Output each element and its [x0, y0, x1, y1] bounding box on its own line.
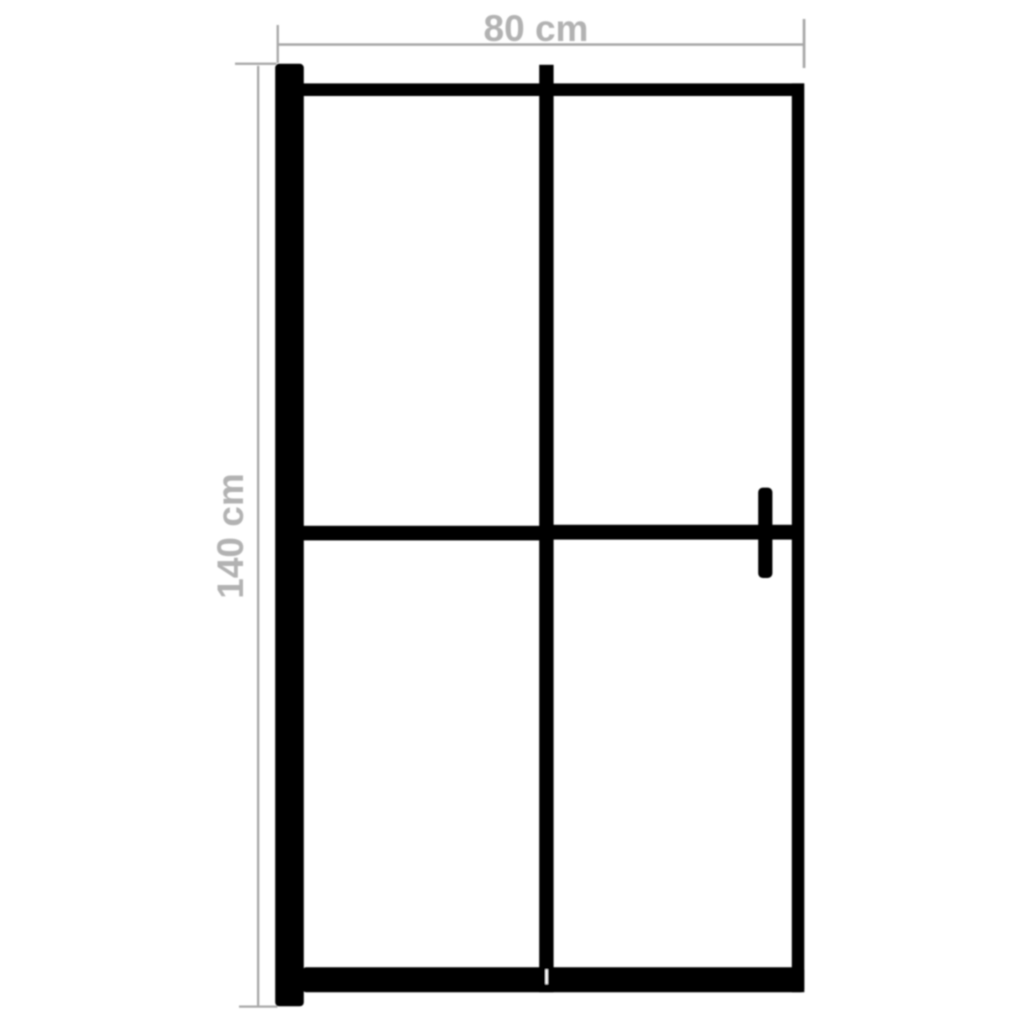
svg-text:140 cm: 140 cm	[210, 473, 251, 599]
svg-text:80 cm: 80 cm	[484, 8, 589, 49]
